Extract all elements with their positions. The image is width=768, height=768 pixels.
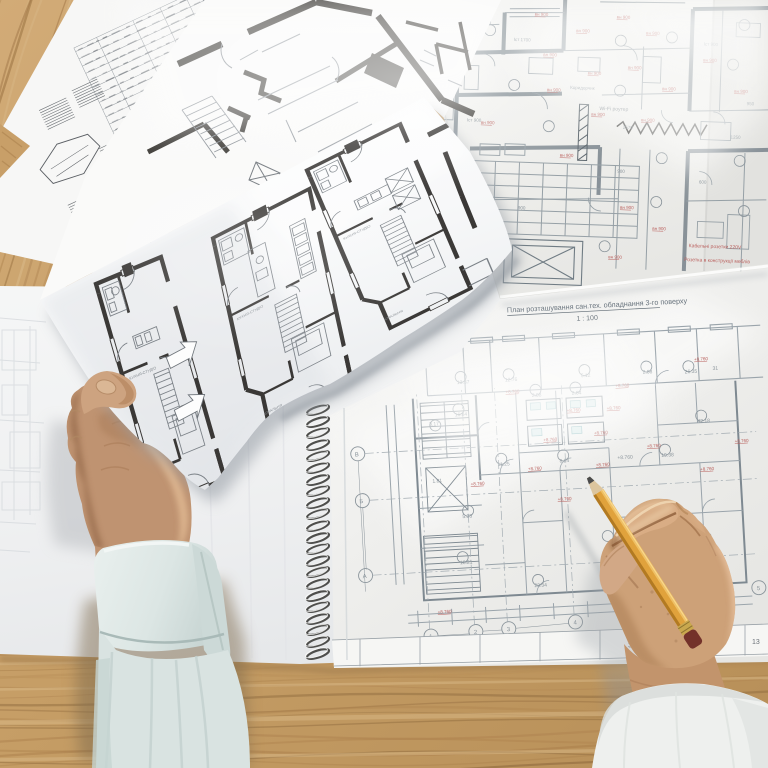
svg-text:вн 900: вн 900 <box>652 226 666 231</box>
svg-text:вн 900: вн 900 <box>620 205 634 210</box>
svg-text:1.81: 1.81 <box>432 478 442 485</box>
svg-text:Б: Б <box>359 499 363 505</box>
svg-text:19.38: 19.38 <box>661 452 674 459</box>
svg-text:900: 900 <box>617 169 625 174</box>
svg-text:600: 600 <box>699 179 707 184</box>
svg-text:вн 900: вн 900 <box>608 254 622 259</box>
svg-text:В: В <box>355 452 359 458</box>
svg-text:31: 31 <box>712 366 718 372</box>
svg-text:13: 13 <box>752 639 760 646</box>
svg-text:900: 900 <box>518 205 526 210</box>
svg-text:23.34: 23.34 <box>534 582 547 589</box>
